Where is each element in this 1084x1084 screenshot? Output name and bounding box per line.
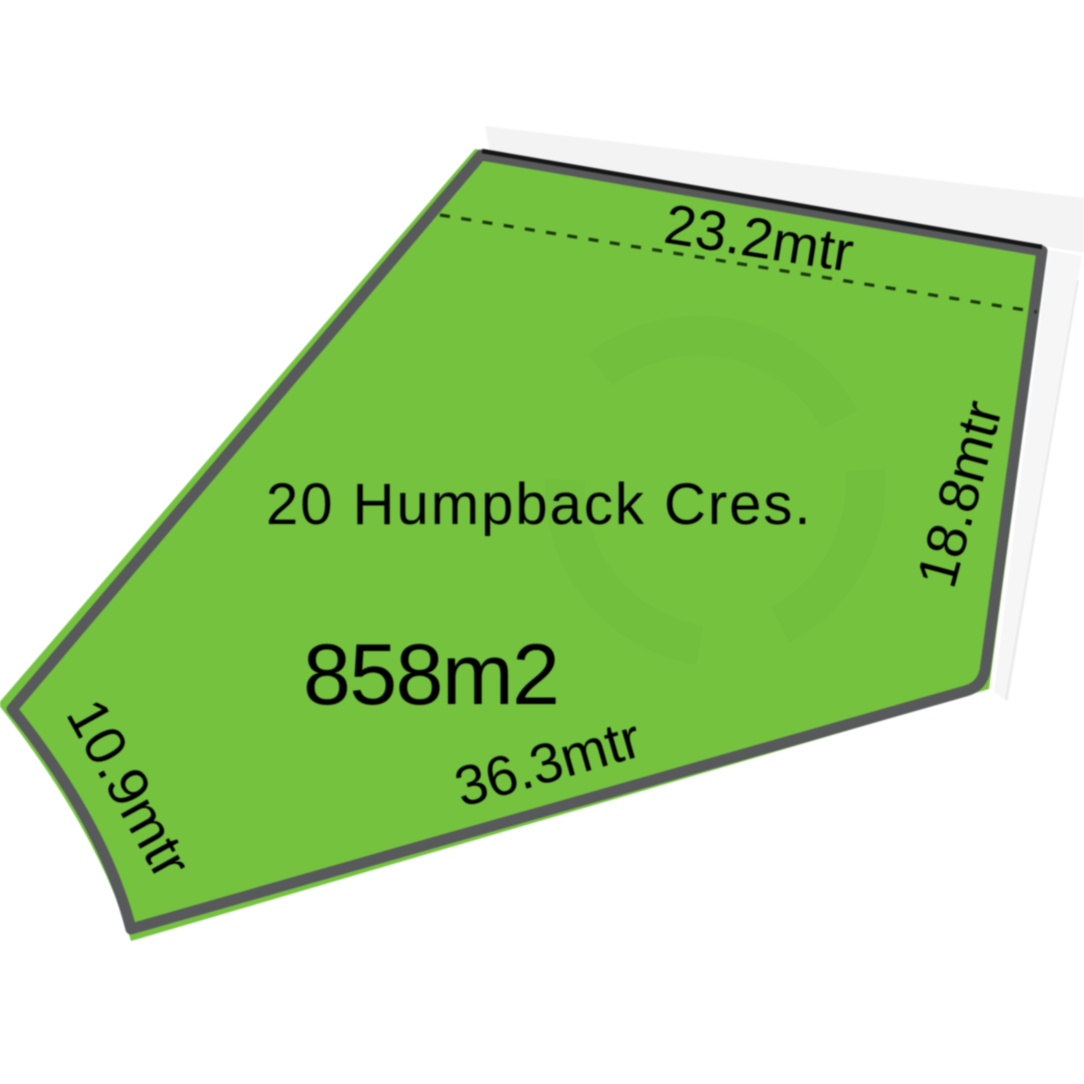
svg-text:20 Humpback Cres.: 20 Humpback Cres. [266,472,813,537]
svg-text:858m2: 858m2 [303,627,558,723]
